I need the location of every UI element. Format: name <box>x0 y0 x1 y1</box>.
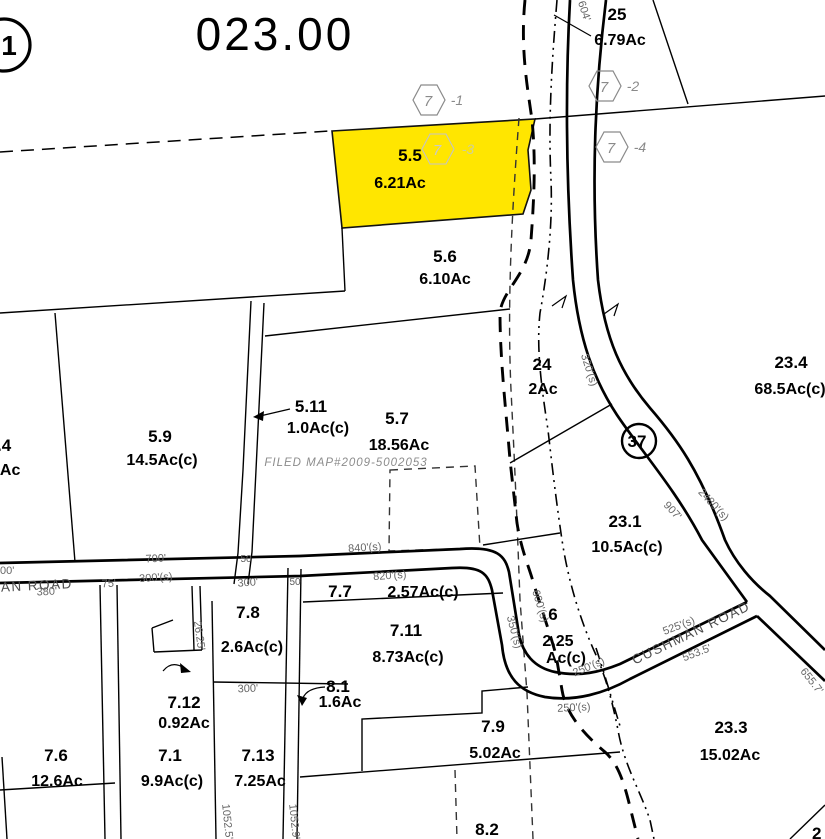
corner-circle-number: 1 <box>1 30 17 61</box>
dim-2480s: 2480'(s) <box>695 486 731 523</box>
boundary-parcel-25-east <box>653 0 688 104</box>
boundary-7-1-7-13 <box>212 601 216 839</box>
parcel-7-1-number: 7.1 <box>158 746 182 765</box>
parcel-5-6-number: 5.6 <box>433 247 457 266</box>
parcel-25-number: 25 <box>608 5 627 24</box>
dim-350s: 350'(s) <box>504 615 524 650</box>
parcel-7-6-number: 7.6 <box>44 746 68 765</box>
parcel-25-area: 6.79Ac <box>594 32 646 49</box>
parcel-7-13-area: 7.25Ac <box>234 773 286 790</box>
boundary-strip-8-1-west <box>283 568 288 839</box>
boundary-dashed-top <box>0 131 330 152</box>
hex-ref-7-3-num: 7 <box>433 142 442 159</box>
hex-ref-7-1-num: 7 <box>424 93 433 110</box>
hex-ref-7-2-num: 7 <box>600 79 609 96</box>
parcel-corner-partial-number: 2 <box>812 824 821 839</box>
parcel-5-5-area: 6.21Ac <box>374 175 426 192</box>
boundary-line <box>342 228 345 291</box>
parcel-7-9-area: 5.02Ac <box>469 745 521 762</box>
boundary-strip-75-east <box>117 585 121 839</box>
dim-700: 700' <box>145 552 166 565</box>
parcel-5-7-area: 18.56Ac <box>369 437 430 454</box>
hex-ref-7-4-num: 7 <box>607 140 616 157</box>
parcel-7-7-area: 2.57Ac(c) <box>387 584 458 601</box>
dim-655-7: 655.7' <box>798 666 825 697</box>
filed-map-dashed-rect <box>389 466 480 551</box>
parcel-6-area-line1: 2.25 <box>542 633 573 650</box>
parcel-5-9-number: 5.9 <box>148 427 172 446</box>
parcel-23-4-area: 68.5Ac(c) <box>754 381 825 398</box>
parcel-7-8-area: 2.6Ac(c) <box>221 639 283 656</box>
dim-380: 380' <box>36 585 57 598</box>
parcel-7-12-area: 0.92Ac <box>158 715 210 732</box>
parcel-23-1-area: 10.5Ac(c) <box>591 539 662 556</box>
parcel-8-2-number: 8.2 <box>475 820 499 839</box>
parcel-7-8-number: 7.8 <box>236 603 260 622</box>
dim-left-partial: 00' <box>0 565 14 577</box>
hex-ref-7-4-suffix: -4 <box>634 139 647 155</box>
parcel-24-number: 24 <box>533 355 552 374</box>
dim-300s: 300'(s) <box>139 571 173 585</box>
filed-map-note: FILED MAP#2009-5002053 <box>264 457 427 469</box>
route-road-west-edge-lower <box>757 616 825 681</box>
boundary-strip-5-11-east <box>248 303 264 584</box>
boundary-line <box>0 291 345 313</box>
parcel-23-4-number: 23.4 <box>774 353 808 372</box>
parcel-5-7-number: 5.7 <box>385 409 409 428</box>
map-sheet-number: 023.00 <box>196 8 355 60</box>
boundary-line <box>55 313 75 562</box>
boundary-strip-5-11-west <box>234 301 251 584</box>
parcel-7-11-area: 8.73Ac(c) <box>372 649 443 666</box>
parcel-7-9-number: 7.9 <box>481 717 505 736</box>
leader-5-11 <box>260 409 290 416</box>
road-break-tick <box>604 304 618 316</box>
parcel-24-area: 2Ac <box>528 381 557 398</box>
parcel-left-partial-number: .4 <box>0 436 12 455</box>
dim-75: 75' <box>101 578 116 591</box>
dim-250s-lower: 250'(s) <box>557 701 591 715</box>
boundary-24-23-1 <box>510 404 612 463</box>
dim-1052-5: 1052.5' <box>219 803 235 839</box>
parcel-7-6-area: 12.6Ac <box>31 773 83 790</box>
parcel-7-7-number: 7.7 <box>328 582 352 601</box>
boundary-7-6-west <box>2 757 7 839</box>
boundary-8-2-north <box>300 752 620 777</box>
boundary-dashed-bottom <box>455 770 457 839</box>
dim-320s: 320'(s) <box>578 352 600 387</box>
boundary-strip-8-1-east <box>297 569 301 839</box>
boundary-strip-75-west <box>100 585 105 839</box>
hex-ref-7-3-suffix: -3 <box>462 141 475 157</box>
tax-map-svg: 7 -1 7 -2 7 -3 7 -4 023.00 1 37 CUSHMAN … <box>0 0 825 839</box>
parcel-5-9-area: 14.5Ac(c) <box>126 452 197 469</box>
hex-ref-7-1-suffix: -1 <box>451 92 463 108</box>
leader-7-12-arrowhead <box>180 663 191 673</box>
parcel-5-11-area: 1.0Ac(c) <box>287 420 349 437</box>
boundary-line <box>265 309 510 336</box>
parcel-23-3-number: 23.3 <box>714 718 747 737</box>
hex-ref-7-2-suffix: -2 <box>627 78 640 94</box>
dim-840s: 840'(s) <box>348 541 382 555</box>
parcel-7-11-number: 7.11 <box>390 621 422 640</box>
dim-1052-9: 1052.9' <box>286 803 302 839</box>
dim-820s: 820'(s) <box>373 569 407 583</box>
parcel-5-11-number: 5.11 <box>295 397 327 416</box>
parcel-5-5-number: 5.5 <box>398 146 422 165</box>
parcel-8-1-area: 1.6Ac <box>319 694 362 711</box>
parcel-7-13-number: 7.13 <box>241 746 274 765</box>
dim-300-below: 300' <box>237 683 258 696</box>
parcel-23-3-area: 15.02Ac <box>700 747 761 764</box>
parcel-23-1-number: 23.1 <box>608 512 641 531</box>
parcel-left-partial-area: 9Ac <box>0 462 20 479</box>
dim-50-north: 50 <box>240 554 252 565</box>
dim-50-south: 50 <box>289 577 301 588</box>
boundary-line-top-right <box>535 96 825 119</box>
tax-map-canvas: 7 -1 7 -2 7 -3 7 -4 023.00 1 37 CUSHMAN … <box>0 0 825 839</box>
road-break-tick <box>552 296 566 308</box>
parcel-5.5-highlight[interactable] <box>332 119 535 228</box>
parcel-5-6-area: 6.10Ac <box>419 271 471 288</box>
parcel-7-12-number: 7.12 <box>167 693 200 712</box>
dim-300-road: 300' <box>237 576 258 589</box>
dim-604: 604' <box>575 0 593 23</box>
parcel-7-1-area: 9.9Ac(c) <box>141 773 203 790</box>
route-shield-number: 37 <box>628 432 647 451</box>
